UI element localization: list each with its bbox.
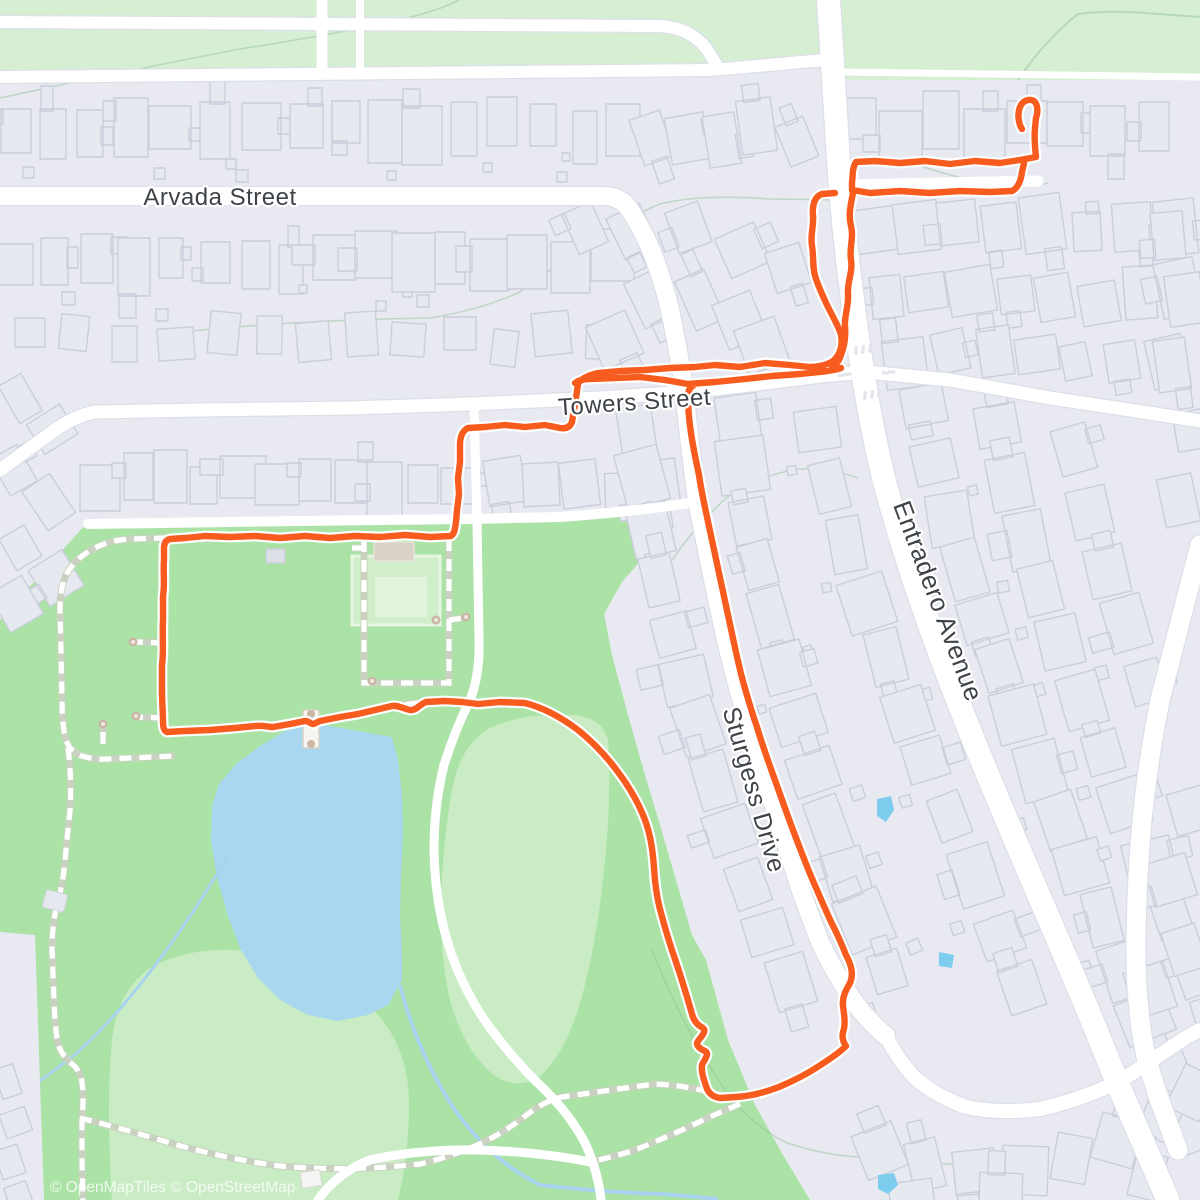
svg-text:© OpenMapTiles © OpenStreetMap: © OpenMapTiles © OpenStreetMap xyxy=(50,1179,295,1196)
svg-text:Arvada Street: Arvada Street xyxy=(143,184,296,211)
